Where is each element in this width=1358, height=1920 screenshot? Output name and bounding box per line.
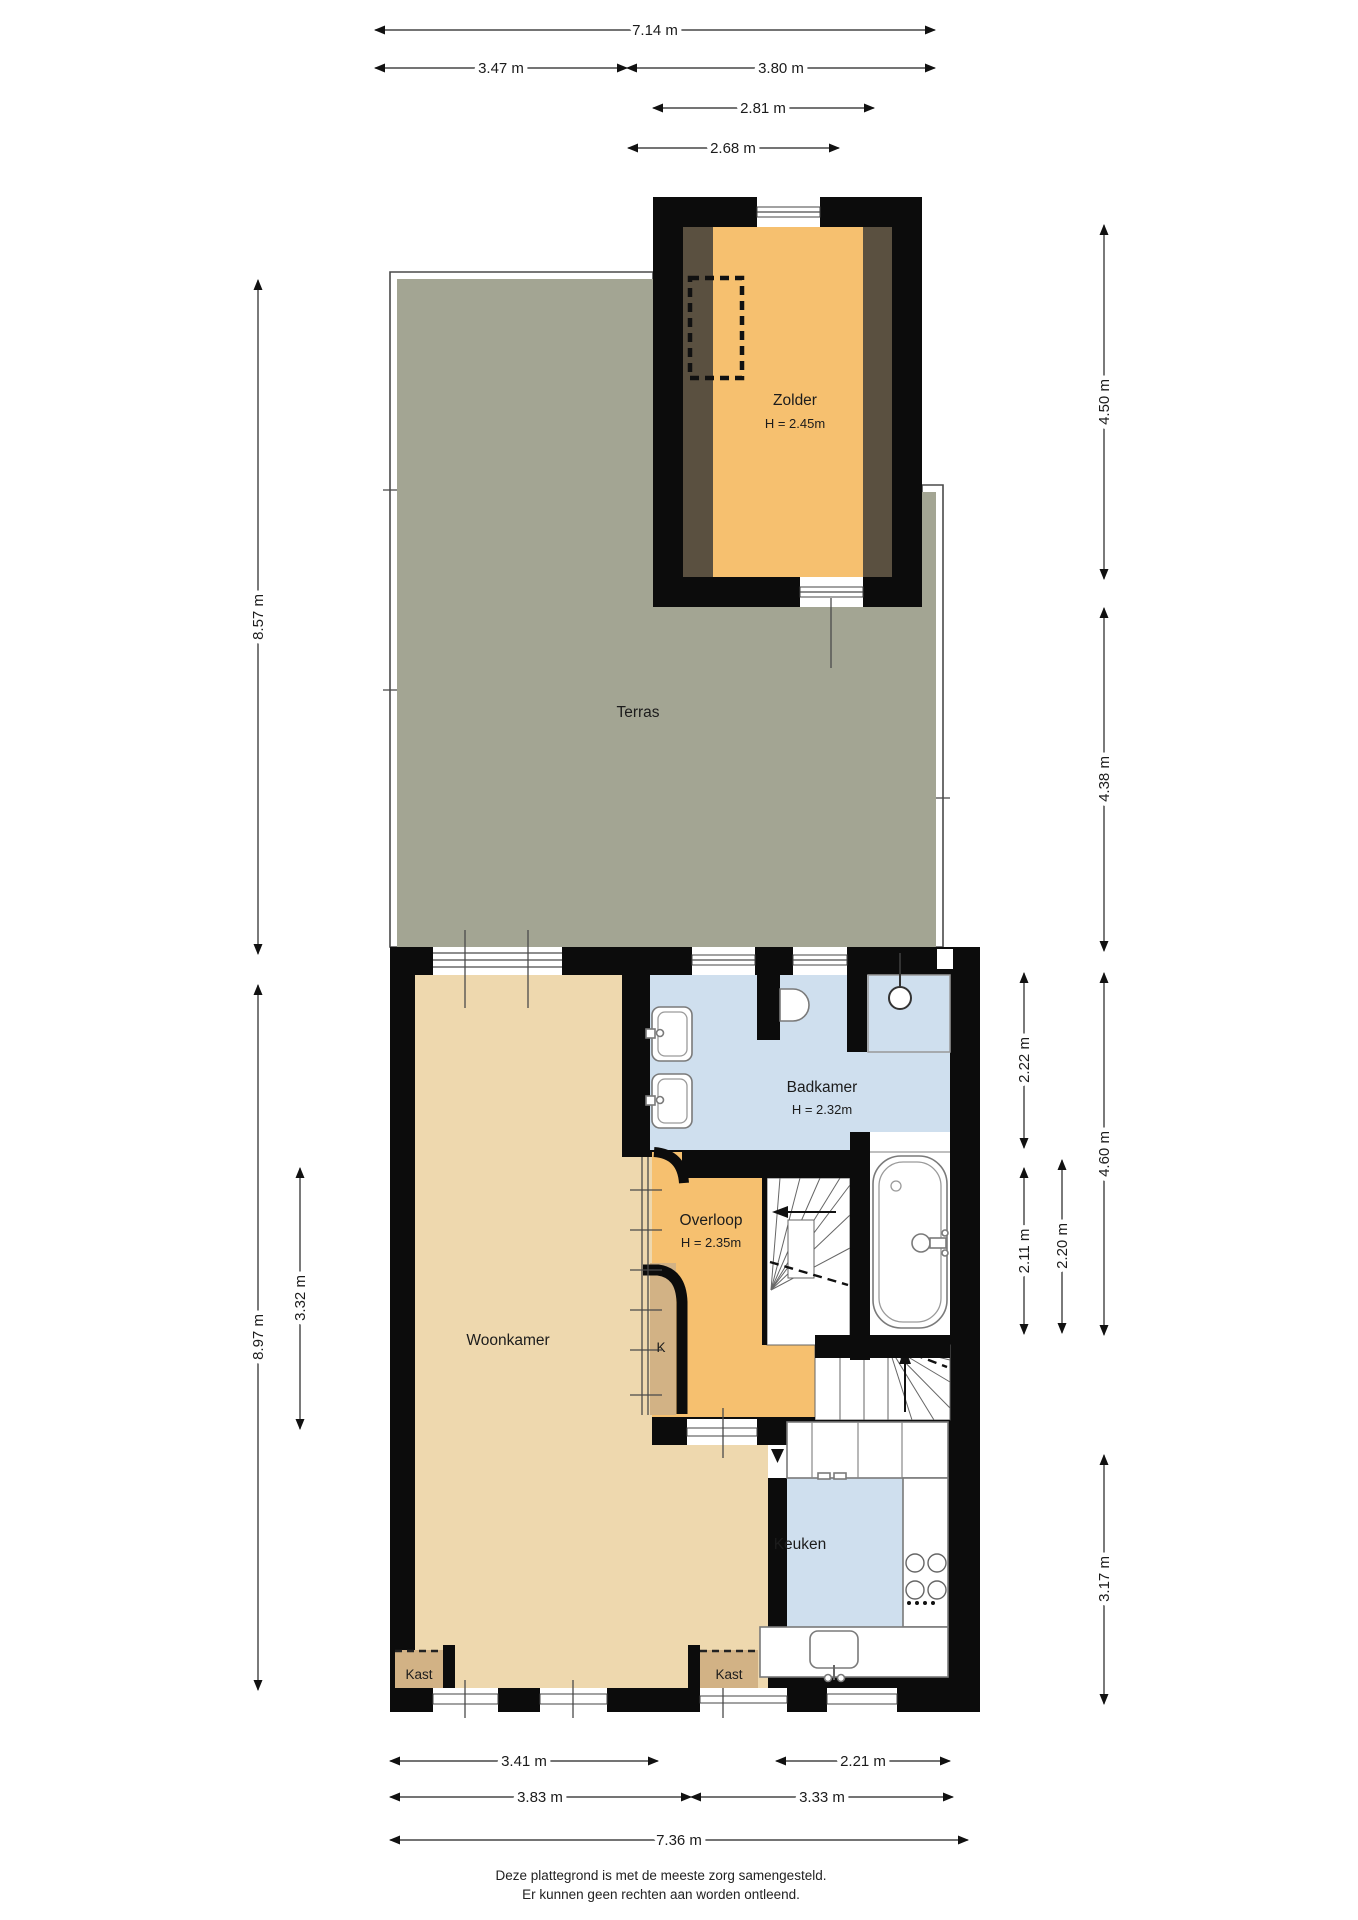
top-wall-window bbox=[793, 947, 847, 975]
room-label-closet-k: K bbox=[656, 1340, 665, 1355]
dim-right-keuken: 3.17 m bbox=[1096, 1455, 1113, 1704]
washbasin bbox=[646, 1007, 692, 1061]
dim-right-badkamer: 2.22 m bbox=[1016, 973, 1033, 1148]
closet-label: Kast bbox=[715, 1667, 742, 1682]
closet-k-floor bbox=[650, 1263, 676, 1415]
dim-left-terras: 8.57 m bbox=[250, 280, 267, 954]
toilet bbox=[780, 989, 809, 1021]
room-zolder: Zolder H = 2.45m bbox=[653, 197, 922, 668]
staircase-up bbox=[767, 1178, 850, 1345]
corner-window bbox=[937, 949, 953, 969]
dim-attic-outer: 2.81 m bbox=[653, 100, 874, 117]
dim-left-woonkamer: 8.97 m bbox=[250, 985, 267, 1690]
svg-text:2.68 m: 2.68 m bbox=[710, 140, 756, 157]
room-height-badkamer: H = 2.32m bbox=[792, 1102, 852, 1117]
svg-text:3.47 m: 3.47 m bbox=[478, 60, 524, 77]
dim-bottom-keuken-outer: 3.33 m bbox=[691, 1789, 953, 1806]
dim-top-total: 7.14 m bbox=[375, 22, 935, 39]
dim-right-zolder: 4.50 m bbox=[1096, 225, 1113, 579]
dim-right-hall-b: 2.20 m bbox=[1054, 1160, 1071, 1333]
closet-kast-right: Kast bbox=[700, 1650, 758, 1688]
svg-text:3.41 m: 3.41 m bbox=[501, 1753, 547, 1770]
svg-text:2.11 m: 2.11 m bbox=[1016, 1229, 1033, 1274]
keuken-door bbox=[768, 1445, 787, 1478]
disclaimer-line-1: Deze plattegrond is met de meeste zorg s… bbox=[496, 1868, 827, 1883]
dim-top-right: 3.80 m bbox=[627, 60, 935, 77]
dim-bottom-woonkamer-inner: 3.41 m bbox=[390, 1753, 658, 1770]
svg-text:2.81 m: 2.81 m bbox=[740, 100, 786, 117]
zolder-window-top bbox=[757, 197, 820, 227]
bottom-wall-window bbox=[827, 1688, 897, 1712]
kitchen-sink-counter bbox=[760, 1627, 948, 1682]
svg-text:2.22 m: 2.22 m bbox=[1016, 1037, 1033, 1083]
dim-left-inner: 3.32 m bbox=[292, 1168, 309, 1429]
svg-text:8.97 m: 8.97 m bbox=[250, 1314, 267, 1360]
bathtub bbox=[870, 1132, 950, 1335]
kitchen-sink bbox=[810, 1631, 858, 1668]
dim-bottom-keuken-inner: 2.21 m bbox=[776, 1753, 950, 1770]
svg-text:3.83 m: 3.83 m bbox=[517, 1789, 563, 1806]
svg-text:2.20 m: 2.20 m bbox=[1054, 1223, 1071, 1269]
closet-kast-left: Kast bbox=[395, 1650, 443, 1688]
top-wall-window bbox=[692, 947, 755, 975]
room-label-woonkamer: Woonkamer bbox=[466, 1332, 549, 1349]
disclaimer-line-2: Er kunnen geen rechten aan worden ontlee… bbox=[522, 1887, 800, 1902]
room-label-zolder: Zolder bbox=[773, 392, 817, 409]
svg-text:4.50 m: 4.50 m bbox=[1096, 379, 1113, 425]
zolder-slope-right bbox=[863, 227, 892, 577]
dim-attic-inner: 2.68 m bbox=[628, 140, 839, 157]
svg-text:7.36 m: 7.36 m bbox=[656, 1832, 702, 1849]
svg-text:3.80 m: 3.80 m bbox=[758, 60, 804, 77]
svg-text:4.60 m: 4.60 m bbox=[1096, 1131, 1113, 1177]
svg-text:3.33 m: 3.33 m bbox=[799, 1789, 845, 1806]
svg-text:8.57 m: 8.57 m bbox=[250, 594, 267, 640]
room-height-zolder: H = 2.45m bbox=[765, 416, 825, 431]
closet-label: Kast bbox=[405, 1667, 432, 1682]
overloop-floor-strip bbox=[767, 1345, 815, 1417]
dim-top-left: 3.47 m bbox=[375, 60, 627, 77]
kitchen-cabinets bbox=[787, 1422, 948, 1479]
dim-bottom-total: 7.36 m bbox=[390, 1832, 968, 1849]
main-floor: Kast Kast Woonkamer Badkamer H = 2.32m O… bbox=[390, 930, 980, 1718]
washbasin bbox=[646, 1074, 692, 1128]
disclaimer: Deze plattegrond is met de meeste zorg s… bbox=[496, 1868, 827, 1902]
svg-text:2.21 m: 2.21 m bbox=[840, 1753, 886, 1770]
floorplan-drawing: Terras Zolder H = 2.45m bbox=[0, 0, 1358, 1920]
dim-right-hall-a: 2.11 m bbox=[1016, 1168, 1033, 1334]
room-label-keuken: Keuken bbox=[774, 1536, 827, 1553]
room-label-overloop: Overloop bbox=[680, 1212, 743, 1229]
dim-right-hall-total: 4.60 m bbox=[1096, 973, 1113, 1335]
dim-right-terras: 4.38 m bbox=[1096, 608, 1113, 951]
floorplan-page: Terras Zolder H = 2.45m bbox=[0, 0, 1358, 1920]
room-label-terras: Terras bbox=[616, 704, 659, 721]
room-height-overloop: H = 2.35m bbox=[681, 1235, 741, 1250]
svg-text:3.32 m: 3.32 m bbox=[292, 1275, 309, 1321]
room-label-badkamer: Badkamer bbox=[787, 1079, 858, 1096]
svg-text:3.17 m: 3.17 m bbox=[1096, 1556, 1113, 1602]
svg-text:4.38 m: 4.38 m bbox=[1096, 756, 1113, 802]
dim-bottom-woonkamer-outer: 3.83 m bbox=[390, 1789, 691, 1806]
svg-text:7.14 m: 7.14 m bbox=[632, 22, 678, 39]
